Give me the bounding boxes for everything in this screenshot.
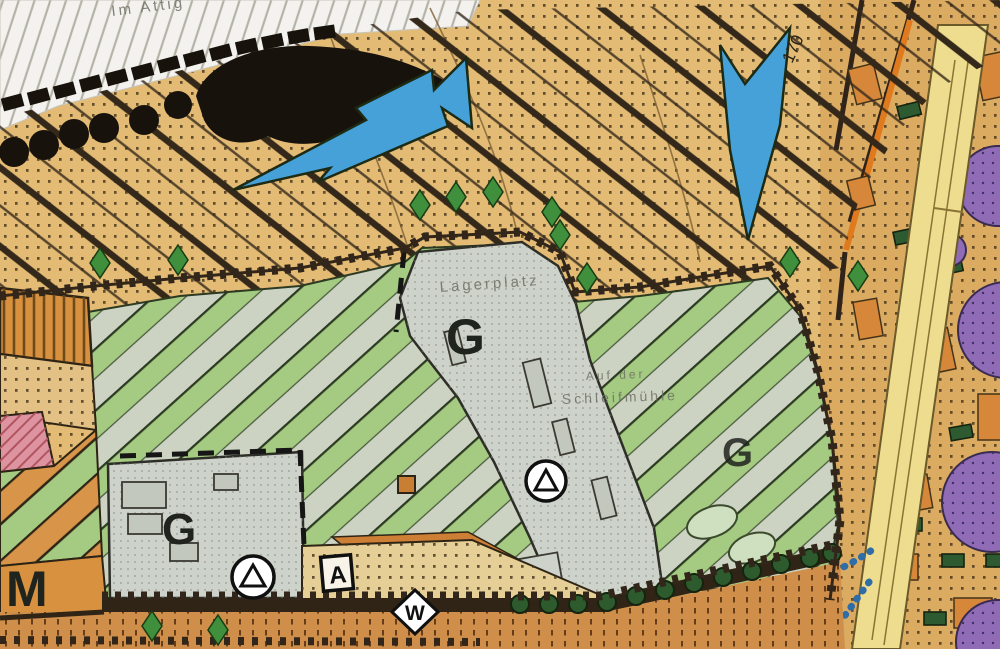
zoning-plan-map: Im Attig: [0, 0, 1000, 649]
zone-g-center-label: G: [446, 309, 485, 365]
orange-building: [398, 476, 415, 493]
map-canvas: Im Attig: [0, 0, 1000, 649]
monument-symbol-central: [526, 461, 566, 501]
monument-symbol-west: [232, 556, 274, 598]
a-box-symbol: A: [321, 555, 354, 591]
w-symbol-letter: W: [405, 602, 425, 625]
zone-g-west-label: G: [162, 505, 196, 554]
zone-g-east-label: G: [722, 431, 753, 475]
zone-m-label: M: [6, 561, 48, 617]
orange-strip-hatch: [0, 288, 92, 366]
a-symbol-letter: A: [328, 561, 348, 589]
street-label-1: Auf der: [586, 367, 646, 383]
